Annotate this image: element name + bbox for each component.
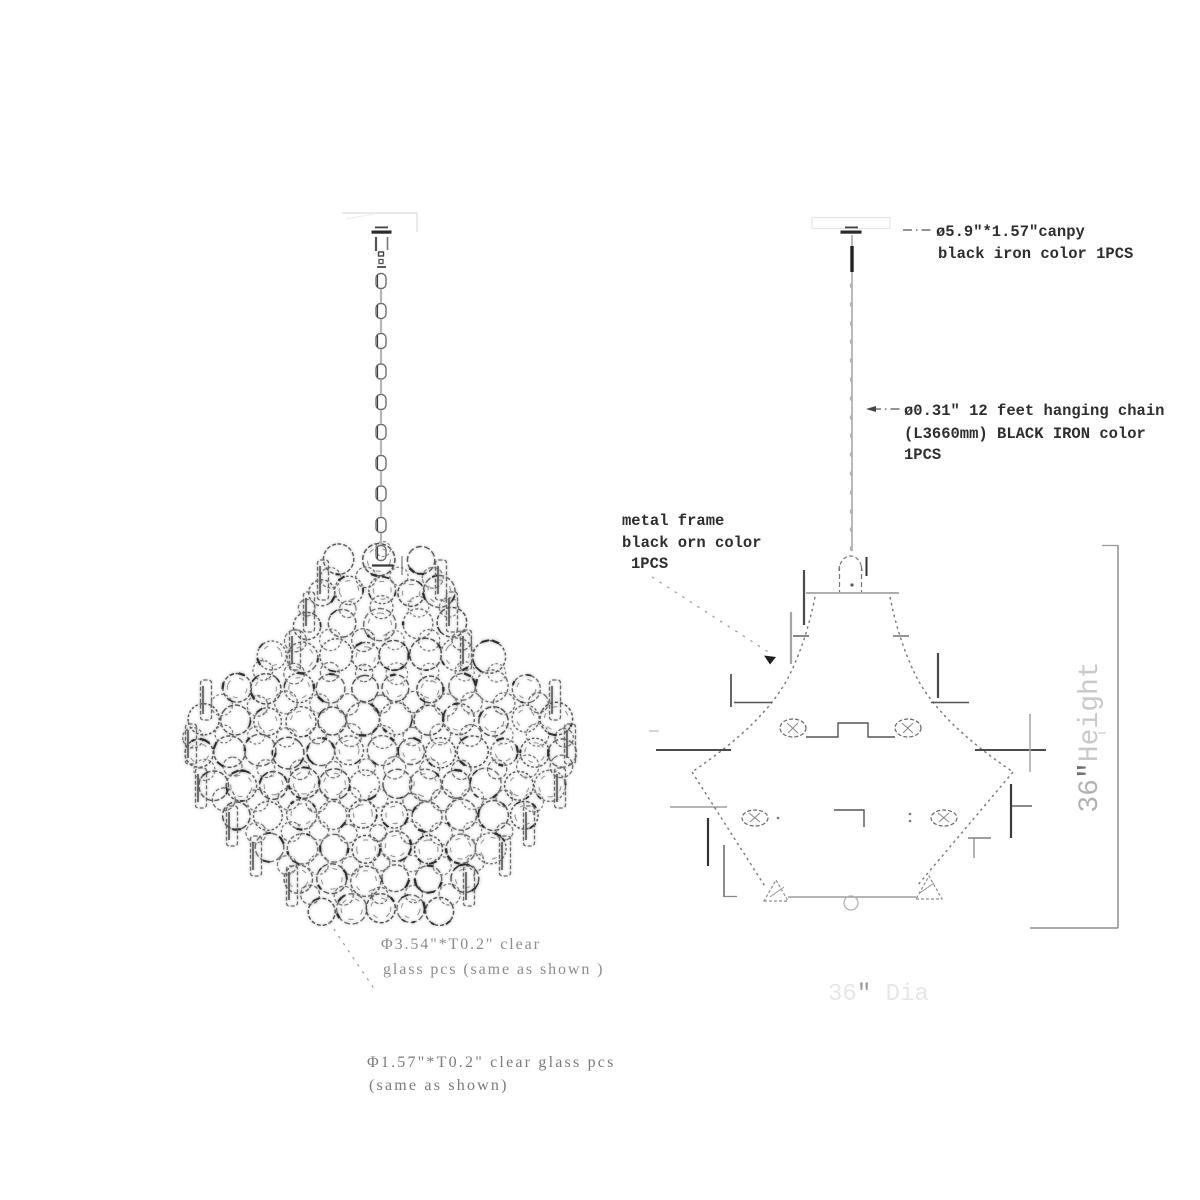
- svg-text:36" Dia: 36" Dia: [828, 981, 929, 1008]
- svg-text:black orn color: black orn color: [622, 534, 762, 552]
- svg-text:ø5.9"*1.57"canpy: ø5.9"*1.57"canpy: [936, 223, 1085, 241]
- svg-text:(L3660mm) BLACK IRON color: (L3660mm) BLACK IRON color: [904, 425, 1146, 443]
- svg-text:1PCS: 1PCS: [631, 555, 668, 573]
- svg-text:metal frame: metal frame: [622, 512, 724, 530]
- svg-text:1PCS: 1PCS: [904, 446, 941, 464]
- svg-text:(same as shown): (same as shown): [369, 1077, 509, 1094]
- svg-text:Φ3.54"*T0.2" clear: Φ3.54"*T0.2" clear: [381, 936, 541, 953]
- svg-text:36"Height: 36"Height: [1075, 661, 1106, 812]
- svg-text:glass pcs (same as shown ): glass pcs (same as shown ): [383, 961, 604, 978]
- svg-text:Φ1.57"*T0.2" clear glass pcs: Φ1.57"*T0.2" clear glass pcs: [367, 1054, 616, 1071]
- svg-text:black iron color 1PCS: black iron color 1PCS: [938, 245, 1133, 263]
- svg-text:ø0.31" 12 feet hanging chain: ø0.31" 12 feet hanging chain: [904, 402, 1164, 420]
